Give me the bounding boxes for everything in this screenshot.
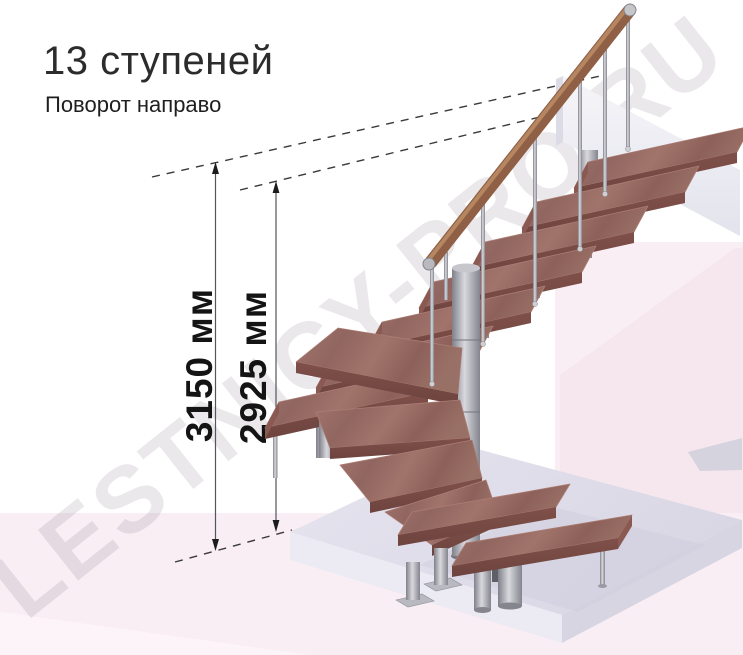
staircase-diagram-page: LESTNICY-PRO.RU 3150 мм 2925 мм [0,0,743,655]
dimension-label-step: 2925 мм [233,290,274,444]
page-subtitle: Поворот направо [45,92,221,118]
dimension-label-total: 3150 мм [179,288,220,442]
page-title: 13 ступеней [43,40,273,82]
handrail-cap-top [624,4,636,16]
handrail-cap-bottom [423,258,435,270]
arrowhead [273,181,280,193]
